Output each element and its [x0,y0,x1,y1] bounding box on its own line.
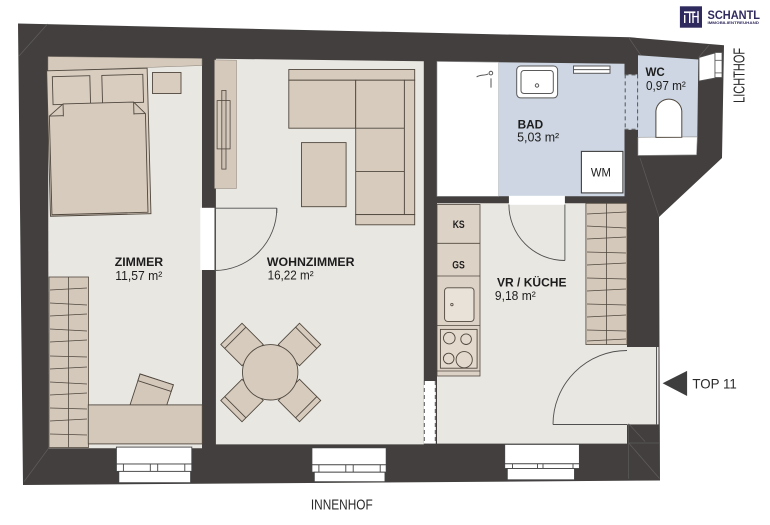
svg-text:ZIMMER: ZIMMER [115,255,164,269]
svg-text:11,57 m²: 11,57 m² [115,268,163,283]
svg-text:9,18 m²: 9,18 m² [495,288,537,303]
svg-text:WM: WM [591,166,611,180]
svg-text:LICHTHOF: LICHTHOF [732,48,749,103]
svg-text:IMMOBILIENTREUHAND: IMMOBILIENTREUHAND [708,20,760,25]
svg-text:GS: GS [452,260,465,272]
svg-text:INNENHOF: INNENHOF [311,496,373,513]
svg-text:TOP 11: TOP 11 [692,376,737,392]
svg-text:VR / KÜCHE: VR / KÜCHE [497,274,567,289]
svg-text:5,03 m²: 5,03 m² [517,129,560,144]
svg-text:0,97 m²: 0,97 m² [646,78,686,93]
svg-text:KS: KS [453,219,465,231]
svg-text:16,22 m²: 16,22 m² [268,267,315,282]
